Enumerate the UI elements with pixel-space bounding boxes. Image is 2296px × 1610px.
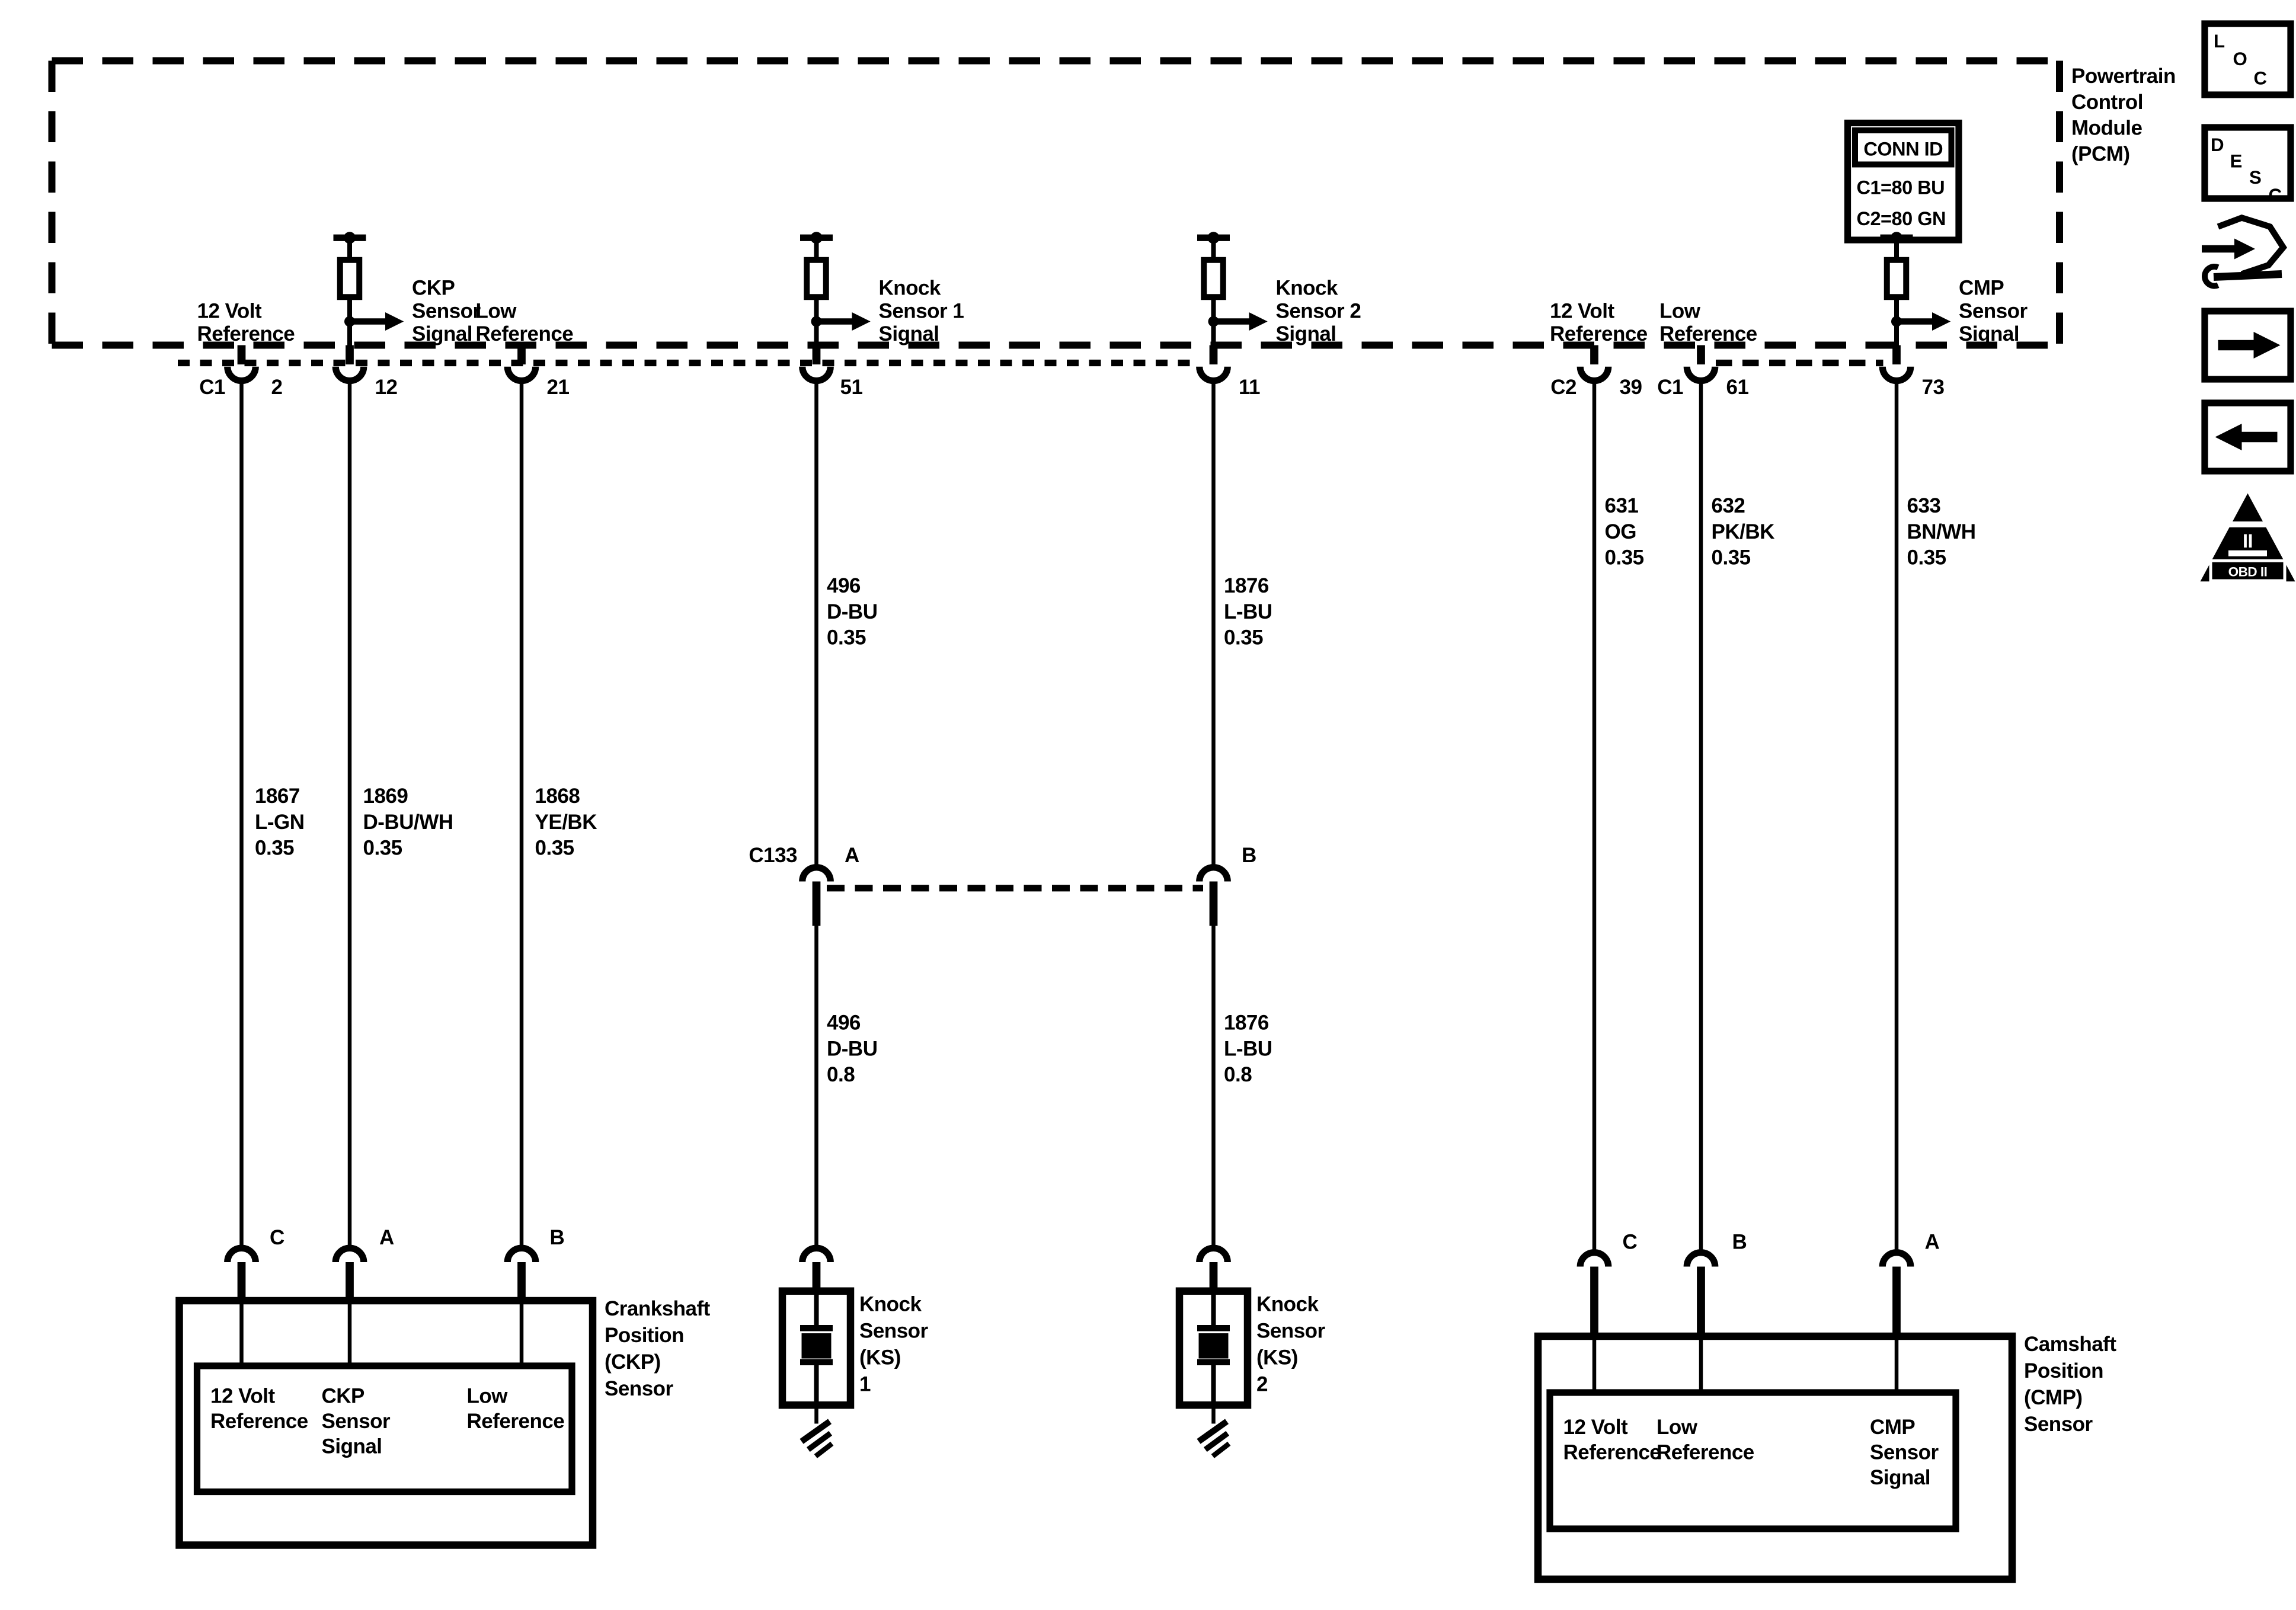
cmp-side-label: (CMP) [2024, 1386, 2083, 1409]
ks1-label: (KS) [859, 1346, 901, 1369]
label-ks2-signal: Sensor 2 [1276, 299, 1361, 322]
wire-label-631: 0.35 [1605, 546, 1644, 569]
label-ckp-signal: Sensor [412, 299, 481, 322]
cmp-sensor: C B A 12 Volt Reference Low Reference CM… [1538, 1231, 2116, 1580]
ckp-pin-letter: C [270, 1226, 284, 1249]
label-low-ref-left: Reference [476, 322, 574, 345]
ckp-side-label: Sensor [605, 1377, 674, 1400]
wire-label-496-08: 0.8 [827, 1063, 855, 1086]
terminal-pin-label: 2 [271, 376, 283, 399]
ks1-label: 1 [859, 1373, 871, 1396]
cmp-inner-label-low: Reference [1657, 1441, 1754, 1464]
cmp-terminal-dome [1687, 1253, 1715, 1267]
label-low-ref-right: Reference [1659, 322, 1757, 345]
piezo-element-icon [1197, 1294, 1230, 1406]
label-cmp-signal: Sensor [1959, 299, 2028, 322]
cmp-pin-letter: B [1732, 1231, 1747, 1254]
terminal-pin-label: 21 [547, 376, 570, 399]
label-ks1-signal: Signal [879, 322, 939, 345]
ks2-label: 2 [1256, 1373, 1268, 1396]
wire-label-496-035: 496 [827, 574, 861, 597]
cmp-pin-letter: A [1925, 1231, 1940, 1254]
ckp-side-label: Crankshaft [605, 1297, 711, 1320]
ckp-inner-label-12v: Reference [210, 1410, 308, 1433]
ckp-pin-letter: A [379, 1226, 394, 1249]
ckp-terminal-dome [335, 1248, 363, 1262]
ckp-inner-label-low: Reference [467, 1410, 565, 1433]
label-ks1-signal: Knock [879, 277, 942, 300]
wire-label-1876-035: 0.35 [1224, 626, 1263, 649]
wire-label-632: 0.35 [1712, 546, 1751, 569]
pcm-title-line: Module [2071, 116, 2142, 139]
label-ckp-signal: Signal [412, 322, 472, 345]
ckp-inner-label-signal: CKP [322, 1385, 365, 1408]
wire-label-496-035: 0.35 [827, 626, 866, 649]
label-cmp-signal: CMP [1959, 277, 2004, 300]
ckp-side-label: (CKP) [605, 1350, 661, 1374]
label-12v-ref-left: Reference [197, 322, 295, 345]
conn-id-row: C1=80 BU [1857, 177, 1945, 199]
wire-label-1868: 1868 [535, 785, 580, 808]
cmp-inner-label-12v: Reference [1563, 1441, 1661, 1464]
pcm-module-outline [52, 60, 2060, 345]
ks2-label: Knock [1256, 1293, 1319, 1316]
c133-pin-a-label: A [845, 844, 859, 867]
desc-letter: C [2269, 185, 2282, 206]
label-ks2-signal: Signal [1276, 322, 1336, 345]
wire-label-1869: 0.35 [363, 837, 402, 860]
ckp-inner-label-signal: Sensor [322, 1410, 391, 1433]
pcm-title: Powertrain Control Module (PCM) [2071, 65, 2176, 165]
wire-labels: 1867 L-GN 0.35 1869 D-BU/WH 0.35 1868 YE… [255, 494, 1976, 1086]
ks1-label: Sensor [859, 1320, 929, 1343]
ckp-sensor: C A B 12 Volt Reference CKP Sensor Signa… [180, 1226, 711, 1545]
desc-letter: E [2230, 151, 2242, 172]
wire-label-1869: 1869 [363, 785, 408, 808]
resistor-symbol-cmp [1881, 232, 1951, 345]
wire-label-632: 632 [1712, 494, 1745, 517]
wire-label-1867: 1867 [255, 785, 300, 808]
label-ks1-signal: Sensor 1 [879, 299, 964, 322]
wire-label-1876-08: 0.8 [1224, 1063, 1252, 1086]
wire-label-496-08: 496 [827, 1012, 861, 1035]
cmp-side-label: Camshaft [2024, 1333, 2116, 1356]
resistor-symbol-ks2 [1197, 232, 1268, 345]
cmp-inner-label-signal: CMP [1870, 1416, 1915, 1439]
pcm-title-line: (PCM) [2071, 142, 2130, 165]
ckp-side-label: Position [605, 1324, 684, 1347]
terminal-pin-label: 39 [1620, 376, 1642, 399]
terminal-pin-label: 61 [1726, 376, 1749, 399]
ckp-inner-label-12v: 12 Volt [210, 1385, 276, 1408]
label-low-ref-right: Low [1659, 299, 1701, 322]
label-12v-ref-right: Reference [1550, 322, 1648, 345]
c133-connector: C133 A B [749, 844, 1256, 926]
loc-icon[interactable]: L O C [2205, 24, 2291, 95]
signal-arrow-icon [852, 312, 871, 331]
arrow-left-icon[interactable] [2205, 403, 2291, 471]
label-ks2-signal: Knock [1276, 277, 1339, 300]
c133-terminal-dome [1200, 868, 1228, 882]
wiring-diagram: Powertrain Control Module (PCM) CONN ID … [0, 0, 2296, 1610]
pcm-circuit-labels: 12 Volt Reference CKP Sensor Signal Low … [197, 277, 2028, 346]
conn-id-title: CONN ID [1863, 139, 1943, 160]
wire-label-633: 0.35 [1907, 546, 1946, 569]
wrench-arrow-icon[interactable] [2202, 217, 2284, 286]
wire-label-631: OG [1605, 520, 1636, 543]
wire-label-1868: 0.35 [535, 837, 574, 860]
wire-label-1876-035: 1876 [1224, 574, 1269, 597]
pcm-connector-row: C1 2 12 21 51 11 C2 39 C1 61 73 [178, 345, 1944, 399]
ks1-label: Knock [859, 1293, 922, 1316]
pcm-title-line: Control [2071, 91, 2143, 114]
knock-sensor-1: Knock Sensor (KS) 1 [782, 1248, 929, 1456]
legend-column: L O C D E S C [2201, 24, 2295, 581]
terminal-pin-label: 73 [1922, 376, 1945, 399]
loc-letter: C [2254, 68, 2267, 88]
terminal-connector-label: C2 [1550, 376, 1576, 399]
cmp-inner-label-12v: 12 Volt [1563, 1416, 1629, 1439]
wire-label-633: 633 [1907, 494, 1941, 517]
signal-arrow-icon [1932, 312, 1950, 331]
ckp-inner-label-signal: Signal [322, 1435, 382, 1458]
harness-wires [242, 380, 1897, 1253]
c133-pin-b-label: B [1242, 844, 1256, 867]
ks2-terminal-dome [1200, 1248, 1228, 1262]
cmp-side-label: Sensor [2024, 1413, 2093, 1436]
cmp-pin-letter: C [1623, 1231, 1638, 1254]
ckp-inner-label-low: Low [467, 1385, 509, 1408]
ks2-label: Sensor [1256, 1320, 1326, 1343]
resistor-symbol-ks1 [800, 232, 871, 345]
label-12v-ref-right: 12 Volt [1550, 299, 1615, 322]
cmp-side-label: Position [2024, 1359, 2103, 1382]
wire-label-1876-08: L-BU [1224, 1037, 1272, 1060]
cmp-inner-label-signal: Signal [1870, 1466, 1930, 1489]
cmp-terminal-dome [1882, 1253, 1911, 1267]
label-low-ref-left: Low [476, 299, 517, 322]
wire-label-496-08: D-BU [827, 1037, 877, 1060]
wire-label-1867: L-GN [255, 811, 305, 834]
c133-terminal-dome [802, 868, 831, 882]
knock-sensor-2: Knock Sensor (KS) 2 [1179, 1248, 1326, 1456]
c133-label: C133 [749, 844, 797, 867]
terminal-connector-label: C1 [1657, 376, 1683, 399]
conn-id-box: CONN ID C1=80 BU C2=80 GN [1848, 123, 1959, 239]
ckp-terminal-dome [228, 1248, 256, 1262]
terminal-connector-label: C1 [199, 376, 225, 399]
wire-label-631: 631 [1605, 494, 1639, 517]
obd2-icon[interactable]: II OBD II [2201, 493, 2295, 581]
arrow-right-icon[interactable] [2205, 311, 2291, 379]
obd2-label: OBD II [2228, 564, 2268, 579]
terminal-pin-label: 12 [375, 376, 398, 399]
piezo-element-icon [800, 1294, 833, 1406]
cmp-inner-label-signal: Sensor [1870, 1441, 1939, 1464]
wire-label-1876-035: L-BU [1224, 600, 1272, 623]
label-cmp-signal: Signal [1959, 322, 2019, 345]
wire-label-1876-08: 1876 [1224, 1012, 1269, 1035]
resistor-symbol-ckp [334, 232, 404, 345]
ks2-label: (KS) [1256, 1346, 1298, 1369]
wire-label-1868: YE/BK [535, 811, 597, 834]
wire-label-633: BN/WH [1907, 520, 1976, 543]
pcm-terminal-labels: C1 2 12 21 51 11 C2 39 C1 61 73 [199, 376, 1944, 399]
label-ckp-signal: CKP [412, 277, 455, 300]
loc-letter: O [2233, 49, 2247, 69]
chassis-ground-icon [1199, 1422, 1229, 1457]
ckp-terminal-dome [507, 1248, 536, 1262]
chassis-ground-icon [802, 1422, 832, 1457]
desc-letter: D [2211, 135, 2224, 155]
signal-arrow-icon [1249, 312, 1268, 331]
obd2-numeral: II [2243, 530, 2253, 552]
cmp-terminal-dome [1580, 1253, 1609, 1267]
ckp-pin-letter: B [550, 1226, 565, 1249]
desc-icon[interactable]: D E S C [2205, 127, 2291, 206]
label-12v-ref-left: 12 Volt [197, 299, 263, 322]
pcm-title-line: Powertrain [2071, 65, 2176, 88]
wire-label-496-035: D-BU [827, 600, 877, 623]
conn-id-row: C2=80 GN [1857, 208, 1946, 229]
terminal-pin-label: 11 [1239, 376, 1260, 399]
signal-arrow-icon [385, 312, 404, 331]
terminal-pin-label: 51 [840, 376, 863, 399]
wire-label-632: PK/BK [1712, 520, 1775, 543]
desc-letter: S [2249, 167, 2261, 188]
cmp-inner-label-low: Low [1657, 1416, 1698, 1439]
ks1-terminal-dome [802, 1248, 831, 1262]
wire-label-1867: 0.35 [255, 837, 294, 860]
wire-label-1869: D-BU/WH [363, 811, 453, 834]
loc-letter: L [2214, 31, 2225, 52]
